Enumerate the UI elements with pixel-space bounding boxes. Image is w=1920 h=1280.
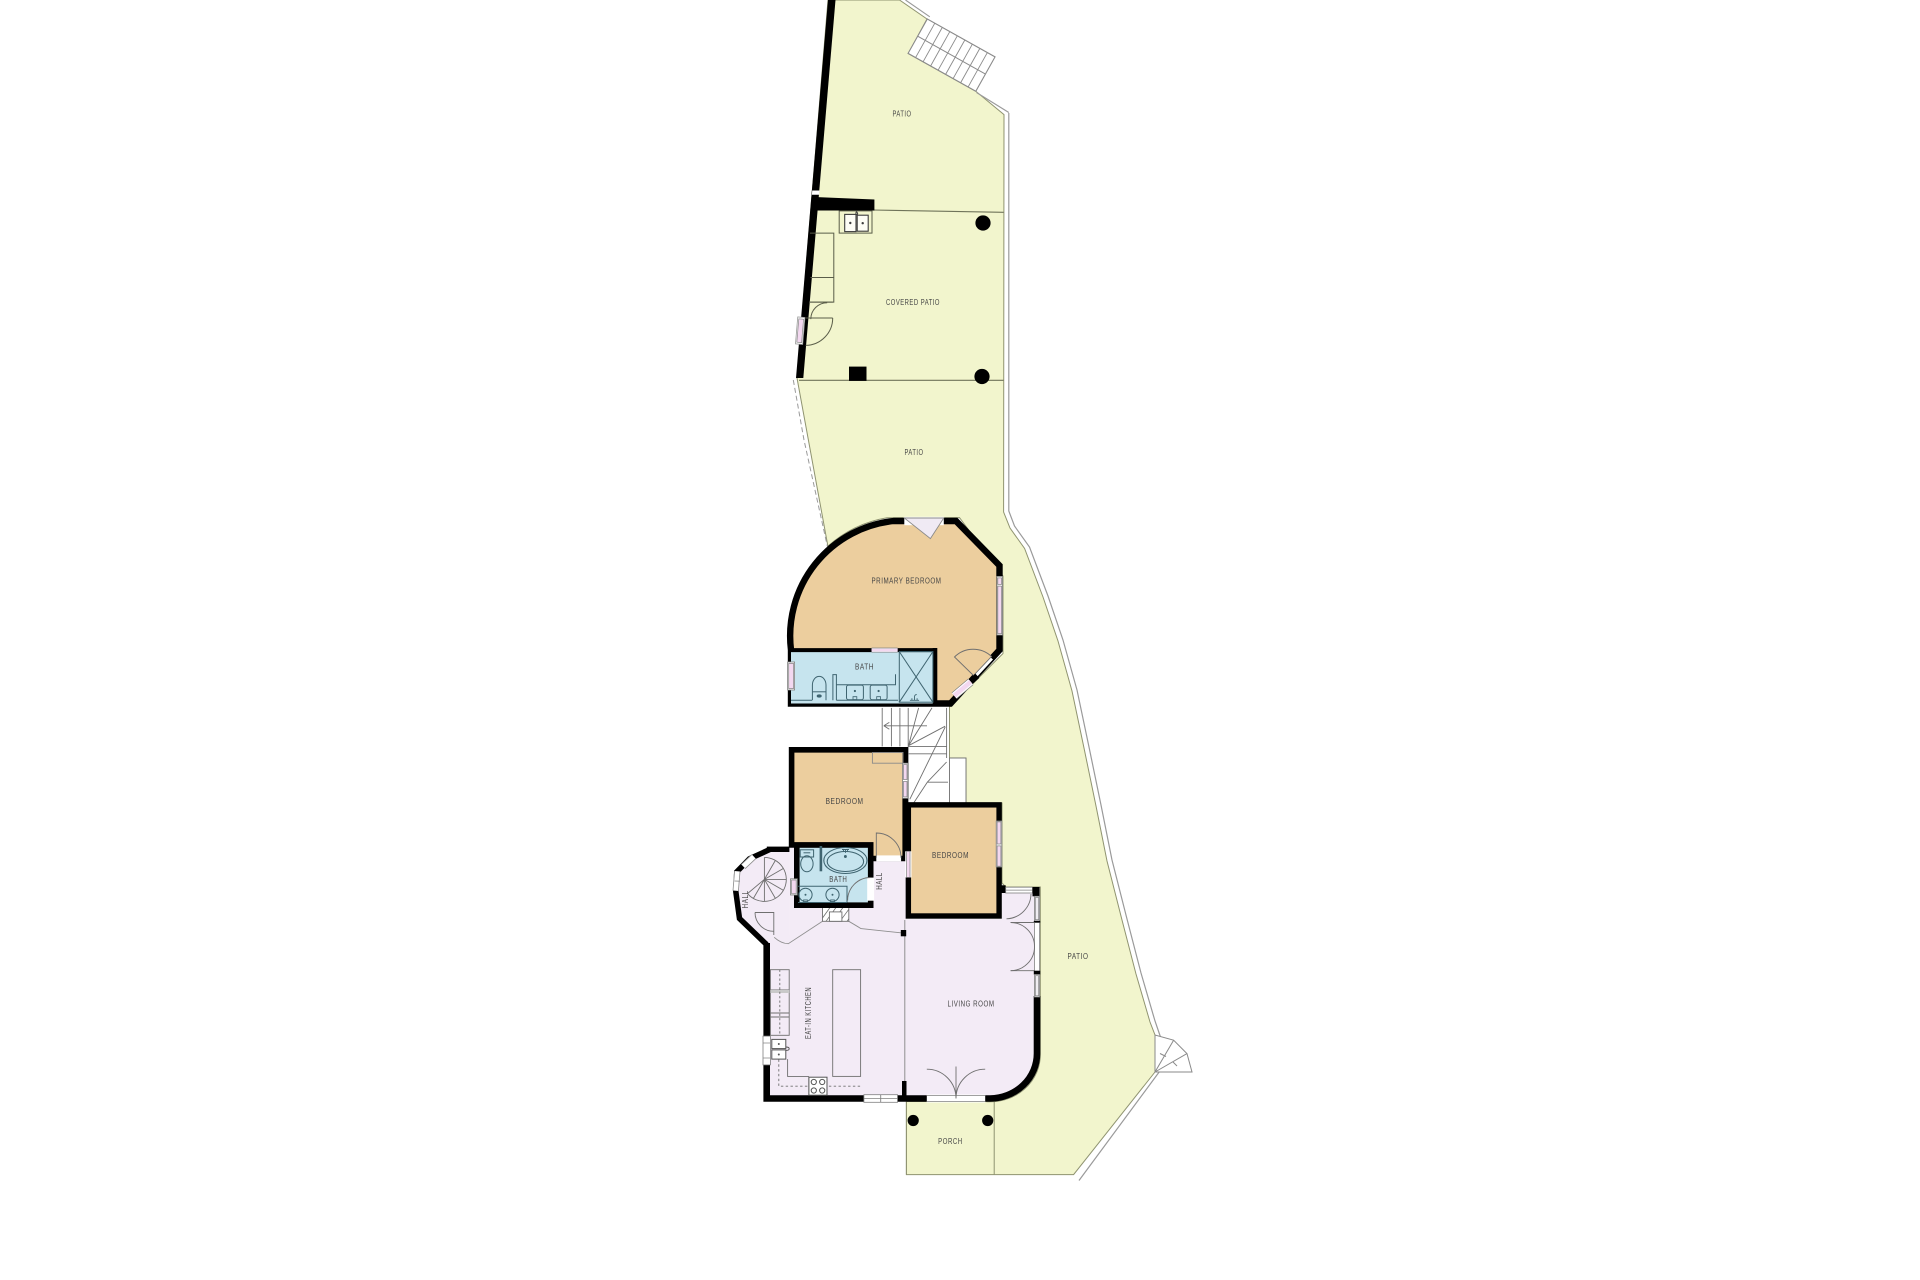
svg-text:BATH: BATH [829,875,847,884]
svg-text:PATIO: PATIO [905,448,924,457]
svg-text:PATIO: PATIO [893,110,912,119]
svg-text:HALL: HALL [875,872,884,890]
svg-text:PATIO: PATIO [1068,952,1089,961]
svg-text:HALL: HALL [741,890,750,908]
svg-text:BEDROOM: BEDROOM [932,851,969,860]
svg-text:BEDROOM: BEDROOM [826,797,864,806]
svg-text:PRIMARY BEDROOM: PRIMARY BEDROOM [872,576,942,585]
svg-text:COVERED PATIO: COVERED PATIO [886,298,940,307]
svg-text:PORCH: PORCH [938,1137,963,1146]
svg-text:EAT-IN KITCHEN: EAT-IN KITCHEN [804,987,813,1039]
svg-text:BATH: BATH [855,662,874,671]
svg-text:LIVING ROOM: LIVING ROOM [948,1000,995,1009]
